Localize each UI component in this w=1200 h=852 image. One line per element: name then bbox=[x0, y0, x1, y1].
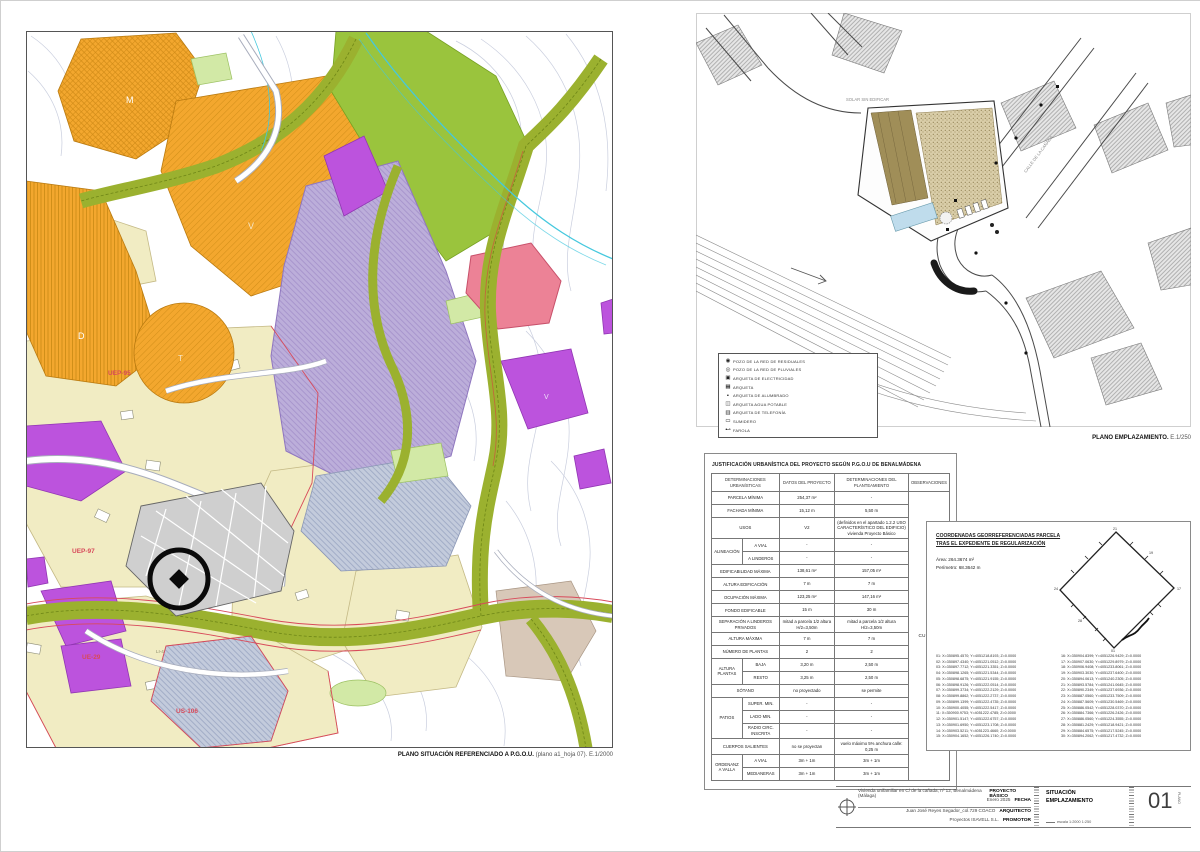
cell-plan: 7 m bbox=[835, 578, 909, 591]
zone-label-ue29: UE-29 bbox=[82, 654, 101, 661]
area-label: Área: bbox=[936, 557, 947, 562]
cell-plan: mitad a parcela 1/2 altura H/2=3,50m bbox=[835, 617, 909, 633]
legend-item-label: ARQUETA DE TELEFONÍA bbox=[733, 410, 786, 415]
row-sublabel: RESTO bbox=[742, 671, 779, 684]
row-label: ALTURA EDIFICACIÓN bbox=[712, 578, 780, 591]
cell-proyecto: 254,37 m² bbox=[779, 492, 834, 505]
garden-feature bbox=[940, 212, 952, 224]
cell-plan: 2,50 m bbox=[835, 671, 909, 684]
legend-symbol-icon: ▪ bbox=[723, 393, 733, 399]
architect-name: Juan José Reyes Segador_col.729 COACO bbox=[906, 808, 995, 813]
row-label: SÓTANO bbox=[712, 684, 780, 697]
sheet-title-box: SITUACIÓN EMPLAZAMIENTO escala 1:2000 1:… bbox=[1042, 787, 1126, 827]
perimetro-value: 68.3642 m bbox=[959, 565, 981, 570]
row-label: ORDENANZA VALLA bbox=[712, 754, 743, 780]
coordinate-entry: 24: X=350887.5609; Y=4051230.5469; Z=0.0… bbox=[1061, 700, 1141, 706]
row-label: ALINEACIÓN bbox=[712, 539, 743, 565]
table-row: PARCELA MÍNIMA 254,37 m² - CUMPLE bbox=[712, 492, 950, 505]
situacion-caption-rest: (plano a1_hoja 07). E.1/2000 bbox=[534, 752, 613, 758]
cell-proyecto: - bbox=[779, 539, 834, 552]
situacion-map: M V D T V UEP-95 UEP-97 UE-29 US-106 LI-… bbox=[26, 31, 613, 748]
zone-label-v: V bbox=[248, 221, 254, 231]
cell-plan: 147,16 m² bbox=[835, 591, 909, 604]
header-determinaciones-planeamiento: DETERMINACIONES DEL PLANTEAMIENTO bbox=[835, 474, 909, 492]
svg-text:01: 01 bbox=[1111, 649, 1115, 652]
row-label: SEPARACIÓN A LINDEROS PRIVADOS bbox=[712, 617, 780, 633]
svg-text:28: 28 bbox=[1078, 619, 1082, 623]
zone-label-m: M bbox=[126, 95, 134, 105]
zone-label-uep95: UEP-95 bbox=[108, 370, 131, 377]
title-block-project-group: Vivienda unifamiliar en C/ de la cañada,… bbox=[858, 788, 1031, 808]
title-block-people-group: Juan José Reyes Segador_col.729 COACO AR… bbox=[858, 808, 1031, 827]
parcel-diagram: 21 17 01 24 19 28 bbox=[1054, 526, 1186, 652]
zone-label-d: D bbox=[78, 331, 85, 341]
zone-label-li4: LI-4 bbox=[156, 649, 164, 654]
cell-proyecto: 138,61 m² bbox=[779, 565, 834, 578]
cell-plan: se permite bbox=[835, 684, 909, 697]
legend-item-label: POZO DE LA RED DE PLUVIALES bbox=[733, 367, 801, 372]
drawing-sheet: M V D T V UEP-95 UEP-97 UE-29 US-106 LI-… bbox=[0, 0, 1200, 852]
diagram-vertex-labels: 21 17 01 24 19 28 bbox=[1054, 527, 1181, 652]
cell-plan: 3m + 1m bbox=[835, 754, 909, 767]
entrance-ramp bbox=[934, 263, 974, 291]
svg-text:17: 17 bbox=[1177, 587, 1181, 591]
coordinate-entry: 27: X=350886.0560; Y=4051224.3555; Z=0.0… bbox=[1061, 717, 1141, 723]
justificacion-panel: JUSTIFICACIÓN URBANÍSTICA DEL PROYECTO S… bbox=[704, 453, 957, 790]
justificacion-table: DETERMINACIONES URBANÍSTICAS DATOS DEL P… bbox=[711, 473, 950, 781]
row-sublabel: A VIAL bbox=[742, 754, 779, 767]
cell-plan: - bbox=[835, 697, 909, 710]
cell-proyecto: 7 m bbox=[779, 578, 834, 591]
coordinate-entry: 28: X=350881.2429; Y=4051218.9421; Z=0.0… bbox=[1061, 723, 1141, 729]
perimetro-label: Perímetro: bbox=[936, 565, 957, 570]
legend-symbol-icon: ▦ bbox=[723, 384, 733, 390]
sheet-number-caption: PLANO bbox=[1177, 792, 1181, 804]
coordinate-entry: 12: X=350901.5147; Y=4051222.6757; Z=0.0… bbox=[936, 717, 1016, 723]
coordinate-entry: 20: X=350894.0613; Y=4051240.2305; Z=0.0… bbox=[1061, 677, 1141, 683]
legend-item: ▭ SUMIDERO bbox=[723, 417, 873, 426]
cell-proyecto: 3,20 m bbox=[779, 658, 834, 671]
row-sublabel: LADO MIN. bbox=[742, 710, 779, 723]
legend-item: ▦ ARQUETA bbox=[723, 383, 873, 392]
coordenadas-title-line1: COORDENADAS GEORREFERENCIADAS PARCELA bbox=[936, 532, 1060, 540]
date-label: FECHA bbox=[1014, 798, 1031, 803]
sheet-title-line1: SITUACIÓN bbox=[1046, 790, 1126, 798]
emplazamiento-caption-rest: E.1/250 bbox=[1169, 435, 1191, 441]
legend-item-label: ARQUETA AGUA POTABLE bbox=[733, 402, 787, 407]
coordinate-entry: 13: X=350901.6950; Y=4051223.1708; Z=0.0… bbox=[936, 723, 1016, 729]
cell-proyecto: no se proyectan bbox=[779, 739, 834, 755]
cell-proyecto: 2 bbox=[779, 645, 834, 658]
header-datos-proyecto: DATOS DEL PROYECTO bbox=[779, 474, 834, 492]
cell-proyecto: mitad a parcela 1/2 altura H/2=3,50m bbox=[779, 617, 834, 633]
titleblock-separator-hatch bbox=[1129, 787, 1134, 827]
zone-label-v2: V bbox=[544, 394, 549, 401]
row-label: FACHADA MÍNIMA bbox=[712, 505, 780, 518]
row-sublabel: RADIO CIRC. INSCRITA bbox=[742, 723, 779, 738]
title-block-row: Proyectos ISAVELL S.L. PROMOTOR bbox=[858, 817, 1031, 826]
row-sublabel: A VIAL bbox=[742, 539, 779, 552]
legend-item: ▣ ARQUETA DE ELECTRICIDAD bbox=[723, 374, 873, 383]
justificacion-title: JUSTIFICACIÓN URBANÍSTICA DEL PROYECTO S… bbox=[712, 462, 950, 468]
legend-item: ◎ POZO DE LA RED DE PLUVIALES bbox=[723, 366, 873, 375]
cell-proyecto: - bbox=[779, 697, 834, 710]
diagram-dense-points bbox=[1122, 618, 1149, 640]
coordinate-list-col1: 01: X=350895.4570; Y=4051218.8193; Z=0.0… bbox=[936, 654, 1016, 740]
architect-label: ARQUITECTO bbox=[999, 809, 1031, 814]
row-sublabel: A LINDEROS bbox=[742, 552, 779, 565]
diagram-ticks bbox=[1071, 542, 1163, 641]
cell-plan: 157,05 m² bbox=[835, 565, 909, 578]
emplazamiento-caption: PLANO EMPLAZAMIENTO. E.1/250 bbox=[696, 435, 1191, 441]
row-label: OCUPACIÓN MÁXIMA bbox=[712, 591, 780, 604]
sheet-number: 01 bbox=[1148, 788, 1172, 814]
legend-item-label: FAROLA bbox=[733, 428, 750, 433]
siteplan-legend: ◉ POZO DE LA RED DE RESIDUALES ◎ POZO DE… bbox=[718, 353, 878, 438]
sheet-scale: escala 1:2000 1:250 bbox=[1046, 820, 1091, 824]
solar-label: SOLAR SIN EDIFICAR bbox=[846, 97, 889, 102]
cell-plan: 7 m bbox=[835, 632, 909, 645]
legend-symbol-icon: ▭ bbox=[723, 418, 733, 424]
legend-symbol-icon: ▣ bbox=[723, 375, 733, 381]
cell-proyecto: - bbox=[779, 710, 834, 723]
coordenadas-meta: Área: 264.3674 m² Perímetro: 68.3642 m bbox=[936, 556, 980, 572]
cell-plan: (definidos en el apartado 1.2.2 USO CARA… bbox=[835, 518, 909, 539]
cell-proyecto: 7 m bbox=[779, 632, 834, 645]
cell-plan: 3m + 1m bbox=[835, 767, 909, 780]
emplazamiento-caption-bold: PLANO EMPLAZAMIENTO. bbox=[1092, 435, 1169, 441]
legend-item-label: POZO DE LA RED DE RESIDUALES bbox=[733, 359, 805, 364]
project-date: Enero 2025 bbox=[987, 797, 1011, 802]
cell-plan: - bbox=[835, 552, 909, 565]
coordinate-entry: 16: X=350904.8399; Y=4051226.9429; Z=0.0… bbox=[1061, 654, 1141, 660]
row-label: PARCELA MÍNIMA bbox=[712, 492, 780, 505]
row-label: USOS bbox=[712, 518, 780, 539]
header-observaciones: OBSERVACIONES bbox=[908, 474, 949, 492]
coordinate-entry: 30: X=350894.2062; Y=4051217.4732; Z=0.0… bbox=[1061, 734, 1141, 740]
row-label: NÚMERO DE PLANTAS bbox=[712, 645, 780, 658]
cell-proyecto: 3m + 1m bbox=[779, 754, 834, 767]
svg-text:24: 24 bbox=[1054, 587, 1058, 591]
header-determinaciones: DETERMINACIONES URBANÍSTICAS bbox=[712, 474, 780, 492]
promoter-label: PROMOTOR bbox=[1003, 818, 1031, 823]
area-value: 264.3674 m² bbox=[948, 557, 974, 562]
svg-text:19: 19 bbox=[1149, 551, 1153, 555]
coordinate-entry: 01: X=350895.4570; Y=4051218.8193; Z=0.0… bbox=[936, 654, 1016, 660]
cell-plan: - bbox=[835, 492, 909, 505]
coordinate-list-col2: 16: X=350904.8399; Y=4051226.9429; Z=0.0… bbox=[1061, 654, 1141, 740]
cell-proyecto: 123,25 m² bbox=[779, 591, 834, 604]
row-label: EDIFICABILIDAD MÁXIMA bbox=[712, 565, 780, 578]
title-block-row: Vivienda unifamiliar en C/ de la cañada,… bbox=[858, 788, 1031, 797]
row-sublabel: MEDIANERAS bbox=[742, 767, 779, 780]
cell-plan: vuelo máximo 5% anchura calle: 0,25 m bbox=[835, 739, 909, 755]
cell-proyecto: - bbox=[779, 723, 834, 738]
title-block-row: Juan José Reyes Segador_col.729 COACO AR… bbox=[858, 808, 1031, 817]
cell-plan: 2 bbox=[835, 645, 909, 658]
title-block: Vivienda unifamiliar en C/ de la cañada,… bbox=[836, 786, 1191, 828]
zone-label-t: T bbox=[178, 354, 183, 363]
cell-plan: - bbox=[835, 723, 909, 738]
legend-symbol-icon: ◫ bbox=[723, 401, 733, 407]
cell-plan: 30 m bbox=[835, 604, 909, 617]
coordenadas-panel: COORDENADAS GEORREFERENCIADAS PARCELA TR… bbox=[926, 521, 1191, 751]
situacion-map-panel: M V D T V UEP-95 UEP-97 UE-29 US-106 LI-… bbox=[26, 31, 613, 748]
legend-item-label: ARQUETA DE ALUMBRADO bbox=[733, 393, 789, 398]
row-label: PATIOS bbox=[712, 697, 743, 738]
project-parcel bbox=[858, 101, 1008, 291]
legend-item: ▥ ARQUETA DE TELEFONÍA bbox=[723, 409, 873, 418]
row-sublabel: BAJA bbox=[742, 658, 779, 671]
row-label: FONDO EDIFICABLE bbox=[712, 604, 780, 617]
table-header-row: DETERMINACIONES URBANÍSTICAS DATOS DEL P… bbox=[712, 474, 950, 492]
legend-item-label: SUMIDERO bbox=[733, 419, 756, 424]
legend-item: ◫ ARQUETA AGUA POTABLE bbox=[723, 400, 873, 409]
registration-mark-icon bbox=[838, 798, 856, 816]
sheet-title-line2: EMPLAZAMIENTO bbox=[1046, 798, 1126, 806]
coordenadas-title: COORDENADAS GEORREFERENCIADAS PARCELA TR… bbox=[936, 532, 1060, 548]
row-label: CUERPOS SALIENTES bbox=[712, 739, 780, 755]
legend-symbol-icon: ▥ bbox=[723, 410, 733, 416]
legend-symbol-icon: ⊷ bbox=[723, 427, 733, 433]
coordinate-entry: 09: X=350899.1399; Y=4051222.4735; Z=0.0… bbox=[936, 700, 1016, 706]
cell-proyecto: 3m + 1m bbox=[779, 767, 834, 780]
cell-plan: - bbox=[835, 539, 909, 552]
coordinate-entry: 05: X=350898.6875; Y=4051221.9155; Z=0.0… bbox=[936, 677, 1016, 683]
cell-proyecto: no proyectado bbox=[779, 684, 834, 697]
sheet-number-box: 01 PLANO bbox=[1136, 787, 1191, 827]
zone-label-uep97: UEP-97 bbox=[72, 548, 95, 555]
row-label: ALTURA PLANTAS bbox=[712, 658, 743, 684]
zone-label-us106: US-106 bbox=[176, 708, 198, 715]
cell-plan: 5,50 m bbox=[835, 505, 909, 518]
legend-item-label: ARQUETA bbox=[733, 385, 753, 390]
legend-item: ▪ ARQUETA DE ALUMBRADO bbox=[723, 391, 873, 400]
cell-plan: 2,50 m bbox=[835, 658, 909, 671]
cell-plan: - bbox=[835, 710, 909, 723]
legend-item: ⊷ FAROLA bbox=[723, 426, 873, 435]
promoter-name: Proyectos ISAVELL S.L. bbox=[950, 817, 999, 822]
legend-item: ◉ POZO DE LA RED DE RESIDUALES bbox=[723, 357, 873, 366]
cell-proyecto: V2 bbox=[779, 518, 834, 539]
titleblock-separator-hatch bbox=[1034, 787, 1039, 827]
legend-symbol-icon: ◉ bbox=[723, 358, 733, 364]
cell-proyecto: - bbox=[779, 552, 834, 565]
situacion-caption: PLANO SITUACIÓN REFERENCIADO A P.G.O.U. … bbox=[26, 752, 613, 758]
cell-proyecto: 3,25 m bbox=[779, 671, 834, 684]
coordinate-entry: 15: X=350904.1652; Y=4051226.1740; Z=0.0… bbox=[936, 734, 1016, 740]
row-label: ALTURA MÁXIMA bbox=[712, 632, 780, 645]
cell-proyecto: 15 m bbox=[779, 604, 834, 617]
row-sublabel: SUPER. MIN. bbox=[742, 697, 779, 710]
situacion-caption-bold: PLANO SITUACIÓN REFERENCIADO A P.G.O.U. bbox=[398, 752, 534, 758]
project-description: Vivienda unifamiliar en C/ de la cañada,… bbox=[858, 788, 985, 798]
cell-proyecto: 15,12 m bbox=[779, 505, 834, 518]
title-block-info: Vivienda unifamiliar en C/ de la cañada,… bbox=[836, 787, 1033, 827]
legend-symbol-icon: ◎ bbox=[723, 367, 733, 373]
legend-item-label: ARQUETA DE ELECTRICIDAD bbox=[733, 376, 794, 381]
coordenadas-title-line2: TRAS EL EXPEDIENTE DE REGULARIZACIÓN bbox=[936, 540, 1060, 548]
title-block-row: Enero 2025 FECHA bbox=[858, 797, 1031, 806]
svg-text:21: 21 bbox=[1113, 527, 1117, 531]
